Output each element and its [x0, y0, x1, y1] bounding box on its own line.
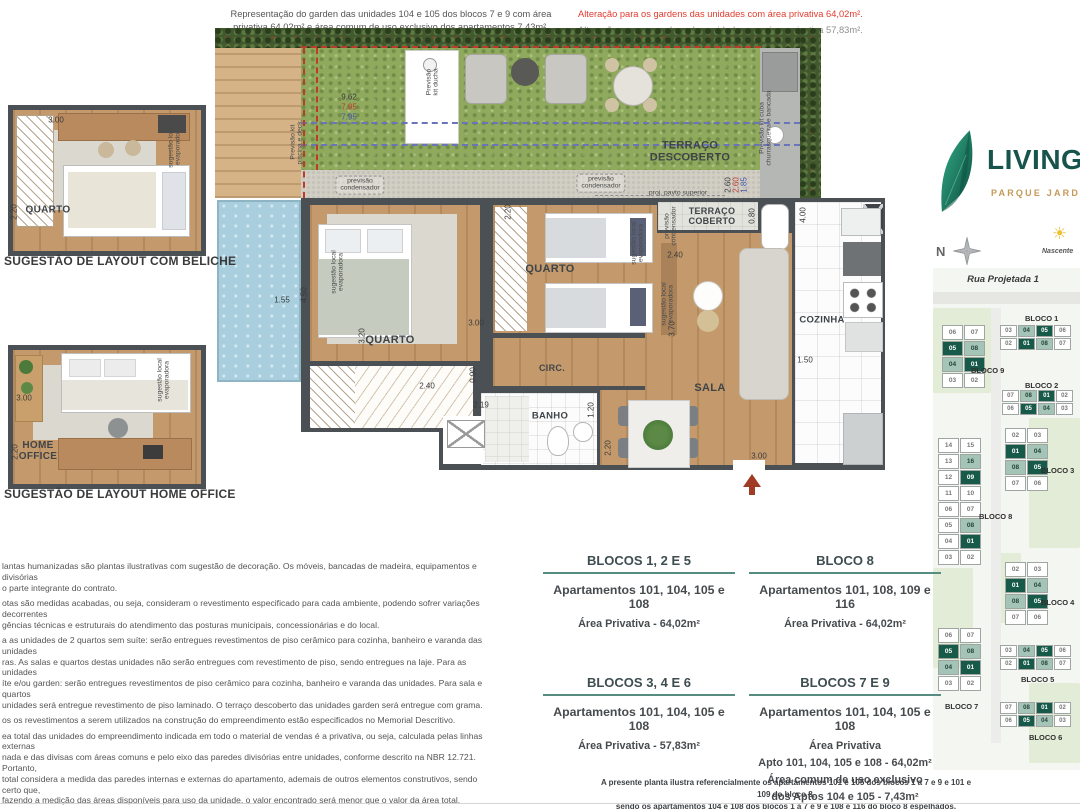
site-unit: 08	[1036, 338, 1053, 350]
site-unit: 08	[1018, 702, 1035, 714]
blanket	[68, 172, 156, 228]
site-unit: 10	[960, 486, 981, 501]
laundry-tank	[447, 420, 485, 448]
inset1-stool-1	[98, 142, 114, 158]
site-block-bloco-1: 0304050602010807	[1000, 325, 1072, 351]
red-boundary-vline-1	[303, 48, 305, 198]
floor-plan	[215, 28, 891, 494]
site-unit: 05	[1036, 645, 1053, 657]
site-unit: 03	[1054, 715, 1071, 727]
inset-bunk-layout	[8, 105, 206, 256]
site-unit: 07	[1054, 338, 1071, 350]
site-unit: 03	[938, 550, 959, 565]
page-bottom-rule	[0, 803, 1080, 804]
pillow	[104, 359, 136, 377]
site-block-bloco-9: 0607050804010302	[942, 325, 986, 389]
kitchen-counter	[845, 322, 883, 352]
disclaimer-paragraph: otas são medidas acabadas, ou seja, cons…	[2, 598, 490, 630]
card-line: Apartamentos 101, 104, 105 e 108	[543, 705, 735, 733]
pillow	[162, 172, 186, 230]
site-unit: 01	[1005, 444, 1026, 459]
covered-terrace-floor	[658, 202, 758, 230]
kitchen-cabinet	[843, 413, 883, 465]
brand-name: LIVING	[987, 144, 1080, 176]
site-unit: 04	[1038, 403, 1055, 415]
site-unit: 03	[1027, 562, 1048, 577]
card-title: BLOCOS 3, 4 E 6	[543, 675, 735, 696]
plant-icon	[19, 360, 33, 374]
inset-home-office-layout	[8, 345, 206, 489]
pillow	[630, 218, 646, 256]
card-line: Apartamentos 101, 104, 105 e 108	[749, 705, 941, 733]
site-unit: 14	[938, 438, 959, 453]
site-unit: 13	[938, 454, 959, 469]
site-unit: 05	[942, 341, 963, 356]
site-unit: 08	[1036, 658, 1053, 670]
site-block-bloco-8: 14151316120911100607050804010302	[938, 438, 982, 566]
site-unit: 05	[1036, 325, 1053, 337]
entry-arrow-icon	[743, 474, 761, 487]
site-unit: 01	[960, 660, 981, 675]
site-unit: 04	[938, 534, 959, 549]
unit-info-card: BLOCO 8Apartamentos 101, 108, 109 e 116Á…	[749, 553, 941, 635]
site-unit: 05	[938, 644, 959, 659]
site-unit: 06	[942, 325, 963, 340]
site-unit: 04	[942, 357, 963, 372]
site-unit: 02	[1005, 562, 1026, 577]
unit-info-cards: BLOCOS 1, 2 E 5Apartamentos 101, 104, 10…	[543, 553, 943, 808]
inset2-desk	[58, 438, 192, 470]
site-unit: 04	[938, 660, 959, 675]
wardrobe-2	[495, 207, 527, 331]
site-unit: 06	[1054, 645, 1071, 657]
site-unit: 02	[1054, 702, 1071, 714]
site-unit: 08	[964, 341, 985, 356]
disclaimer-paragraph: os os revestimentos a serem utilizados n…	[2, 715, 490, 726]
site-unit: 07	[1054, 658, 1071, 670]
tv-sideboard	[661, 243, 677, 335]
site-unit: 02	[960, 676, 981, 691]
pool	[217, 200, 301, 382]
site-unit: 08	[1005, 460, 1026, 475]
site-unit: 03	[1000, 325, 1017, 337]
pillow	[630, 288, 646, 326]
toilet	[547, 426, 569, 456]
site-unit: 06	[1054, 325, 1071, 337]
site-unit: 07	[1002, 390, 1019, 402]
card-line: Área Privativa - 64,02m²	[749, 618, 941, 630]
coffee-table-2	[697, 310, 719, 332]
compass-north-label: N	[936, 244, 945, 259]
site-unit: 01	[1036, 702, 1053, 714]
site-block-bloco-7: 0607050804010302	[938, 628, 982, 692]
lounge-chair-1	[465, 54, 507, 104]
barbecue-kit	[762, 52, 798, 92]
brochure-page: Representação do garden das unidades 104…	[0, 0, 1080, 810]
card-line: Área Privativa - 64,02m²	[543, 618, 735, 630]
garden-table	[613, 66, 653, 106]
outdoor-shower-icon	[766, 126, 784, 144]
site-unit: 02	[1005, 428, 1026, 443]
blanket	[62, 380, 188, 410]
bedroom-2-bed-1	[545, 213, 653, 263]
inset1-wardrobe	[16, 115, 54, 227]
site-street-label: Rua Projetada 1	[933, 274, 1073, 285]
entry-opening	[733, 460, 765, 470]
site-unit: 07	[964, 325, 985, 340]
disclaimer-paragraph: a as unidades de 2 quartos sem suíte: se…	[2, 635, 490, 711]
site-block-label: BLOCO 3	[1041, 466, 1074, 475]
pillow	[69, 359, 101, 377]
site-unit: 07	[960, 502, 981, 517]
site-unit: 04	[1027, 578, 1048, 593]
site-unit: 08	[1005, 594, 1026, 609]
card-title: BLOCOS 7 E 9	[749, 675, 941, 696]
brand-logo: LIVING PARQUE JARDIM	[935, 118, 1080, 230]
site-unit: 07	[1005, 610, 1026, 625]
card-title: BLOCOS 1, 2 E 5	[543, 553, 735, 574]
site-unit: 02	[960, 550, 981, 565]
card-line: Apto 101, 104, 105 e 108 - 64,02m²	[749, 757, 941, 769]
entry-arrow-stem	[749, 487, 755, 495]
site-unit: 07	[960, 628, 981, 643]
inset2-bed	[61, 353, 191, 413]
site-unit: 06	[938, 502, 959, 517]
coffee-table-1	[693, 281, 723, 311]
unit-info-card: BLOCOS 1, 2 E 5Apartamentos 101, 104, 10…	[543, 553, 735, 635]
site-unit: 16	[960, 454, 981, 469]
shower-box	[485, 396, 529, 462]
shower-head-icon	[423, 58, 437, 72]
card-line: Área Privativa	[749, 740, 941, 752]
site-unit: 05	[1018, 715, 1035, 727]
site-unit: 01	[1018, 338, 1035, 350]
oven	[843, 242, 881, 276]
deck-area	[215, 48, 301, 198]
cooktop	[843, 282, 883, 318]
site-unit: 07	[1000, 702, 1017, 714]
alert-red: Alteração para os gardens das unidades c…	[578, 9, 863, 19]
inset2-chair	[108, 418, 128, 438]
bathroom-sink	[573, 422, 593, 442]
card-line: Apartamentos 101, 108, 109 e 116	[749, 583, 941, 611]
site-road	[933, 292, 1080, 304]
inset1-stool-2	[125, 140, 141, 156]
site-unit: 06	[1027, 610, 1048, 625]
site-unit: 04	[1018, 325, 1035, 337]
garden-note-line1: Representação do garden das unidades 104…	[231, 9, 552, 19]
sun-icon: ☀	[1052, 224, 1067, 244]
site-unit: 02	[1000, 658, 1017, 670]
card-line: Área Privativa - 57,83m²	[543, 740, 735, 752]
reference-note: A presente planta ilustra referencialmen…	[600, 777, 972, 810]
site-block-bloco-6: 0708010206050403	[1000, 702, 1072, 728]
site-unit: 06	[1002, 403, 1019, 415]
bathtub	[761, 204, 789, 250]
pillow	[325, 229, 361, 253]
site-unit: 04	[1018, 645, 1035, 657]
site-unit: 03	[1000, 645, 1017, 657]
blanket	[546, 218, 606, 258]
red-boundary-vline-2	[316, 48, 318, 170]
site-unit: 15	[960, 438, 981, 453]
blanket	[319, 259, 409, 335]
site-unit: 05	[938, 518, 959, 533]
plant-icon	[643, 420, 673, 450]
lounge-chair-2	[545, 54, 587, 104]
site-unit: 01	[1005, 578, 1026, 593]
site-unit: 06	[1027, 476, 1048, 491]
site-unit: 03	[1056, 403, 1073, 415]
inset-home-office-caption: SUGESTÃO DE LAYOUT HOME OFFICE	[4, 487, 236, 501]
card-title: BLOCO 8	[749, 553, 941, 574]
site-unit: 07	[1005, 476, 1026, 491]
site-unit: 02	[1000, 338, 1017, 350]
blue-boundary-line-1	[301, 122, 800, 124]
site-unit: 08	[960, 518, 981, 533]
site-unit: 01	[960, 534, 981, 549]
disclaimer-paragraph: ea total das unidades do empreendimento …	[2, 731, 490, 807]
site-block-label: BLOCO 2	[1025, 381, 1058, 390]
kitchen-sink	[841, 208, 881, 236]
bedroom-1-bed	[318, 224, 412, 338]
site-block-bloco-3: 0203010408050706	[1005, 428, 1049, 492]
site-unit: 12	[938, 470, 959, 485]
disclaimer-paragraph: lantas humanizadas são plantas ilustrati…	[2, 561, 490, 593]
garden-chair-3	[605, 98, 619, 112]
inset-bunk-caption: SUGESTÃO DE LAYOUT COM BELICHE	[4, 254, 236, 268]
hedge-right	[800, 28, 821, 200]
site-unit: 05	[1020, 403, 1037, 415]
site-block-label: BLOCO 7	[945, 702, 978, 711]
brand-subtitle: PARQUE JARDIM	[991, 188, 1080, 198]
site-unit: 04	[1036, 715, 1053, 727]
site-unit: 02	[1056, 390, 1073, 402]
site-block-label: BLOCO 6	[1029, 733, 1062, 742]
pillow	[367, 229, 403, 253]
site-unit: 06	[1000, 715, 1017, 727]
compass-rose-icon	[952, 236, 982, 266]
building-cutout	[301, 432, 439, 470]
legal-disclaimers: lantas humanizadas são plantas ilustrati…	[2, 561, 490, 810]
inset1-tv	[158, 115, 186, 133]
site-block-label: BLOCO 8	[979, 512, 1012, 521]
blanket	[546, 288, 606, 328]
site-unit: 03	[942, 373, 963, 388]
site-unit: 04	[1027, 444, 1048, 459]
site-unit: 08	[1020, 390, 1037, 402]
site-unit: 08	[960, 644, 981, 659]
inset2-laptop	[143, 445, 163, 459]
card-line: Apartamentos 101, 104, 105 e 108	[543, 583, 735, 611]
brand-leaf-icon	[935, 126, 987, 218]
site-unit: 09	[960, 470, 981, 485]
hall-floor	[493, 338, 660, 386]
sofa	[739, 248, 789, 400]
garden-chair-1	[605, 58, 619, 72]
garden-side-table	[511, 58, 539, 86]
site-block-label: BLOCO 5	[1021, 675, 1054, 684]
site-unit: 01	[1038, 390, 1055, 402]
site-block-label: BLOCO 4	[1041, 598, 1074, 607]
site-unit: 01	[1018, 658, 1035, 670]
site-unit: 03	[938, 676, 959, 691]
hedge-top	[215, 28, 821, 48]
bedroom-2-bed-2	[545, 283, 653, 333]
plant-icon	[21, 382, 33, 394]
site-block-label: BLOCO 9	[971, 366, 1004, 375]
nascente-label: Nascente	[1042, 248, 1073, 255]
site-unit: 11	[938, 486, 959, 501]
wardrobe-1	[310, 366, 355, 428]
blue-boundary-line-2	[301, 144, 800, 146]
inset1-bunk-bed	[63, 165, 190, 237]
site-block-bloco-2: 0708010206050403	[1002, 390, 1074, 416]
site-unit: 03	[1027, 428, 1048, 443]
upper-floor-projection-line	[595, 195, 725, 196]
site-map: Rua Projetada 1 0304050602010807BLOCO 10…	[933, 268, 1080, 770]
site-block-bloco-5: 0304050602010807	[1000, 645, 1072, 671]
site-unit: 02	[964, 373, 985, 388]
site-block-bloco-4: 0203010408050706	[1005, 562, 1049, 626]
red-boundary-line	[301, 46, 761, 48]
site-unit: 06	[938, 628, 959, 643]
site-block-label: BLOCO 1	[1025, 314, 1058, 323]
